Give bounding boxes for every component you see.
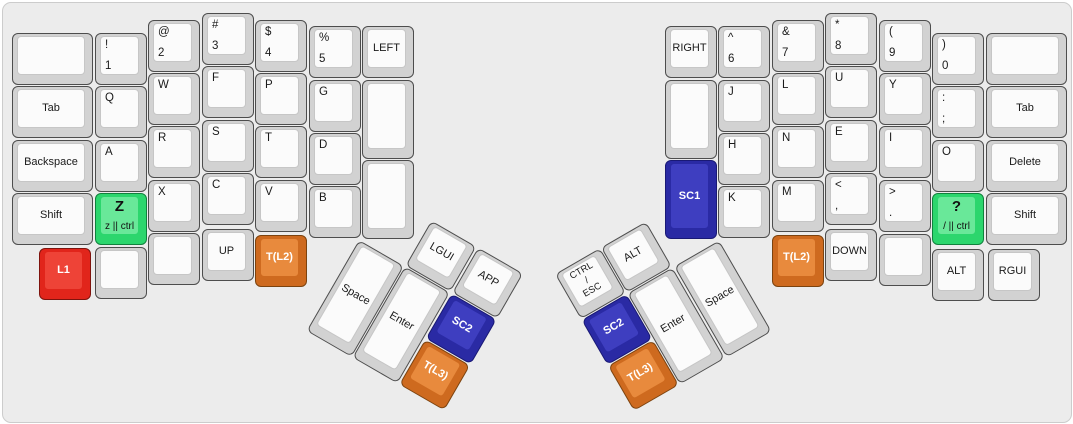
key-v[interactable]: V — [255, 180, 307, 232]
key-tab-left[interactable]: Tab — [12, 86, 93, 138]
key-u[interactable]: U — [825, 66, 877, 118]
key-2-label-bl: 2 — [158, 47, 164, 59]
key-7[interactable]: &7 — [772, 20, 824, 72]
key-4-label-bl: 4 — [265, 47, 271, 59]
key-x-label-tl: X — [158, 186, 166, 198]
key-s-cap: S — [207, 123, 246, 162]
key-ctrl-esc-label-center: CTRL / ESC — [562, 256, 613, 307]
key-t-l2-left-label-center: T(L2) — [261, 239, 298, 276]
key-shift-left-label-center: Shift — [18, 197, 84, 234]
key-t-l2-right[interactable]: T(L2) — [772, 235, 824, 287]
key-delete-label-center: Delete — [992, 144, 1058, 181]
key-3-label-tl: # — [212, 19, 218, 31]
key-o-label-tl: O — [942, 146, 951, 158]
key-t-l2-right-cap: T(L2) — [777, 238, 816, 277]
key-blank-left-col2-bottom-cap — [153, 236, 192, 275]
key-p-cap: P — [260, 76, 299, 115]
key-9-cap: (9 — [884, 23, 923, 62]
key-app-label-center: APP — [463, 254, 514, 305]
key-r-cap: R — [153, 129, 192, 168]
key-tab-left-cap: Tab — [17, 89, 85, 128]
key-v-cap: V — [260, 183, 299, 222]
key-o[interactable]: O — [932, 140, 984, 192]
key-g[interactable]: G — [309, 80, 361, 132]
key-alt-right[interactable]: ALT — [932, 249, 984, 301]
key-rgui[interactable]: RGUI — [988, 249, 1040, 301]
key-z-ctrl-label-big: Z — [101, 198, 138, 215]
key-l1-label-center: L1 — [45, 252, 82, 289]
key-6-label-tl: ^ — [728, 32, 733, 44]
key-comma-label-bl: , — [835, 200, 838, 212]
key-s[interactable]: S — [202, 120, 254, 172]
key-w-cap: W — [153, 76, 192, 115]
key-rgui-cap: RGUI — [993, 252, 1032, 291]
key-delete[interactable]: Delete — [986, 140, 1067, 192]
key-t-l2-right-label-center: T(L2) — [778, 239, 815, 276]
key-period[interactable]: >. — [879, 180, 931, 232]
key-blank-right-col-bottom-cap — [884, 237, 923, 276]
key-5[interactable]: %5 — [309, 26, 361, 78]
key-blank-left-inner-2-cap — [367, 163, 406, 229]
key-left[interactable]: LEFT — [362, 26, 414, 78]
key-l-label-tl: L — [782, 79, 788, 91]
key-shift-right[interactable]: Shift — [986, 193, 1067, 245]
key-8[interactable]: *8 — [825, 13, 877, 65]
key-blank-left-inner-2[interactable] — [362, 160, 414, 239]
key-p[interactable]: P — [255, 73, 307, 125]
key-right[interactable]: RIGHT — [665, 26, 717, 78]
key-tab-left-label-center: Tab — [18, 90, 84, 127]
key-blank-right-col-bottom[interactable] — [879, 234, 931, 286]
key-period-label-bl: . — [889, 207, 892, 219]
key-0[interactable]: )0 — [932, 33, 984, 85]
key-semicolon-cap: :; — [937, 89, 976, 128]
key-6[interactable]: ^6 — [718, 26, 770, 78]
key-n[interactable]: N — [772, 126, 824, 178]
key-left-cap: LEFT — [367, 29, 406, 68]
key-tab-right-cap: Tab — [991, 89, 1059, 128]
key-up-label-center: UP — [208, 233, 245, 270]
key-z-ctrl-label-sub: z || ctrl — [101, 221, 138, 232]
key-1-cap: !1 — [100, 36, 139, 75]
key-n-cap: N — [777, 129, 816, 168]
key-comma-label-tl: < — [835, 179, 842, 191]
key-blank-outer-top-right[interactable] — [986, 33, 1067, 85]
key-6-cap: ^6 — [723, 29, 762, 68]
key-b-label-tl: B — [319, 192, 327, 204]
key-right-cap: RIGHT — [670, 29, 709, 68]
key-blank-outer-top-right-cap — [991, 36, 1059, 75]
key-shift-left[interactable]: Shift — [12, 193, 93, 245]
key-shift-right-label-center: Shift — [992, 197, 1058, 234]
key-t-cap: T — [260, 129, 299, 168]
key-1[interactable]: !1 — [95, 33, 147, 85]
key-z-ctrl[interactable]: Zz || ctrl — [95, 193, 147, 245]
key-i[interactable]: I — [879, 126, 931, 178]
key-p-label-tl: P — [265, 79, 273, 91]
key-5-label-tl: % — [319, 32, 329, 44]
key-i-cap: I — [884, 129, 923, 168]
key-u-label-tl: U — [835, 72, 843, 84]
key-w-label-tl: W — [158, 79, 169, 91]
key-blank-left-inner-1[interactable] — [362, 80, 414, 159]
key-h[interactable]: H — [718, 133, 770, 185]
key-m-cap: M — [777, 183, 816, 222]
key-f[interactable]: F — [202, 66, 254, 118]
key-x[interactable]: X — [148, 180, 200, 232]
key-9-label-tl: ( — [889, 26, 893, 38]
key-c[interactable]: C — [202, 173, 254, 225]
key-8-label-bl: 8 — [835, 40, 841, 52]
key-backspace[interactable]: Backspace — [12, 140, 93, 192]
key-9[interactable]: (9 — [879, 20, 931, 72]
key-blank-outer-top-left-cap — [17, 36, 85, 75]
key-5-label-bl: 5 — [319, 53, 325, 65]
key-tab-right-label-center: Tab — [992, 90, 1058, 127]
key-blank-left-inner-1-cap — [367, 83, 406, 149]
key-t[interactable]: T — [255, 126, 307, 178]
key-slash-ctrl-label-sub: / || ctrl — [938, 221, 975, 232]
key-up-cap: UP — [207, 232, 246, 271]
key-f-label-tl: F — [212, 72, 219, 84]
key-comma[interactable]: <, — [825, 173, 877, 225]
key-8-label-tl: * — [835, 19, 839, 31]
key-w[interactable]: W — [148, 73, 200, 125]
key-v-label-tl: V — [265, 186, 273, 198]
key-u-cap: U — [830, 69, 869, 108]
key-sc1[interactable]: SC1 — [665, 160, 717, 239]
key-4-cap: $4 — [260, 23, 299, 62]
key-d[interactable]: D — [309, 133, 361, 185]
key-d-label-tl: D — [319, 139, 327, 151]
key-l[interactable]: L — [772, 73, 824, 125]
key-period-label-tl: > — [889, 186, 896, 198]
key-t-label-tl: T — [265, 132, 272, 144]
key-h-cap: H — [723, 136, 762, 175]
key-t-l2-left[interactable]: T(L2) — [255, 235, 307, 287]
key-up[interactable]: UP — [202, 229, 254, 281]
key-q-label-tl: Q — [105, 92, 114, 104]
key-t-l2-left-cap: T(L2) — [260, 238, 299, 277]
key-g-cap: G — [314, 83, 353, 122]
key-down-label-center: DOWN — [831, 233, 868, 270]
key-3-label-bl: 3 — [212, 40, 218, 52]
keyboard-panel: TabBackspaceShift!1QAZz || ctrl@2WRX#3FS… — [2, 2, 1072, 423]
key-r[interactable]: R — [148, 126, 200, 178]
key-l1[interactable]: L1 — [39, 248, 91, 300]
key-period-cap: >. — [884, 183, 923, 222]
key-alt-thumb-right-label-center: ALT — [608, 230, 659, 281]
key-e-cap: E — [830, 123, 869, 162]
key-blank-left-col1-bottom-cap — [100, 250, 139, 289]
key-c-label-tl: C — [212, 179, 220, 191]
key-alt-right-cap: ALT — [937, 252, 976, 291]
key-delete-cap: Delete — [991, 143, 1059, 182]
key-1-label-bl: 1 — [105, 60, 111, 72]
key-2-cap: @2 — [153, 23, 192, 62]
key-slash-ctrl-label-big: ? — [938, 198, 975, 215]
key-7-cap: &7 — [777, 23, 816, 62]
key-blank-outer-top-left[interactable] — [12, 33, 93, 85]
key-g-label-tl: G — [319, 86, 328, 98]
key-i-label-tl: I — [889, 132, 892, 144]
key-m[interactable]: M — [772, 180, 824, 232]
key-n-label-tl: N — [782, 132, 790, 144]
key-lgui-cap: LGUI — [415, 226, 468, 279]
key-k-label-tl: K — [728, 192, 736, 204]
key-e-label-tl: E — [835, 126, 843, 138]
key-l-cap: L — [777, 76, 816, 115]
key-2[interactable]: @2 — [148, 20, 200, 72]
key-7-label-tl: & — [782, 26, 790, 38]
key-e[interactable]: E — [825, 120, 877, 172]
key-j[interactable]: J — [718, 80, 770, 132]
key-l1-cap: L1 — [44, 251, 83, 290]
key-down[interactable]: DOWN — [825, 229, 877, 281]
key-a-label-tl: A — [105, 146, 113, 158]
key-shift-left-cap: Shift — [17, 196, 85, 235]
key-tab-right[interactable]: Tab — [986, 86, 1067, 138]
key-a-cap: A — [100, 143, 139, 182]
key-semicolon-label-tl: : — [942, 92, 945, 104]
key-rgui-label-center: RGUI — [994, 253, 1031, 290]
key-y[interactable]: Y — [879, 73, 931, 125]
key-app-cap: APP — [461, 253, 514, 306]
key-z-ctrl-cap: Zz || ctrl — [100, 196, 139, 235]
key-y-cap: Y — [884, 76, 923, 115]
key-blank-right-inner-cap — [670, 83, 709, 149]
key-4-label-tl: $ — [265, 26, 271, 38]
key-j-label-tl: J — [728, 86, 734, 98]
key-semicolon[interactable]: :; — [932, 86, 984, 138]
key-alt-right-label-center: ALT — [938, 253, 975, 290]
key-right-label-center: RIGHT — [671, 30, 708, 67]
keyboard-layout-stage: TabBackspaceShift!1QAZz || ctrl@2WRX#3FS… — [0, 0, 1073, 424]
key-x-cap: X — [153, 183, 192, 222]
key-d-cap: D — [314, 136, 353, 175]
key-o-cap: O — [937, 143, 976, 182]
key-backspace-cap: Backspace — [17, 143, 85, 182]
key-ctrl-esc-cap: CTRL / ESC — [561, 255, 614, 308]
key-k-cap: K — [723, 189, 762, 228]
key-s-label-tl: S — [212, 126, 220, 138]
key-0-label-tl: ) — [942, 39, 946, 51]
key-blank-left-col1-bottom[interactable] — [95, 247, 147, 299]
key-comma-cap: <, — [830, 176, 869, 215]
key-m-label-tl: M — [782, 186, 792, 198]
key-0-label-bl: 0 — [942, 60, 948, 72]
key-b-cap: B — [314, 189, 353, 228]
key-sc1-cap: SC1 — [670, 163, 709, 229]
key-8-cap: *8 — [830, 16, 869, 55]
key-h-label-tl: H — [728, 139, 736, 151]
key-a[interactable]: A — [95, 140, 147, 192]
key-7-label-bl: 7 — [782, 47, 788, 59]
key-k[interactable]: K — [718, 186, 770, 238]
key-b[interactable]: B — [309, 186, 361, 238]
key-3[interactable]: #3 — [202, 13, 254, 65]
key-left-label-center: LEFT — [368, 30, 405, 67]
key-down-cap: DOWN — [830, 232, 869, 271]
key-1-label-tl: ! — [105, 39, 108, 51]
key-backspace-label-center: Backspace — [18, 144, 84, 181]
key-9-label-bl: 9 — [889, 47, 895, 59]
key-blank-right-inner[interactable] — [665, 80, 717, 159]
key-q[interactable]: Q — [95, 86, 147, 138]
key-q-cap: Q — [100, 89, 139, 128]
key-lgui-label-center: LGUI — [416, 227, 467, 278]
key-r-label-tl: R — [158, 132, 166, 144]
key-blank-left-col2-bottom[interactable] — [148, 233, 200, 285]
key-3-cap: #3 — [207, 16, 246, 55]
key-c-cap: C — [207, 176, 246, 215]
key-semicolon-label-bl: ; — [942, 113, 945, 125]
key-shift-right-cap: Shift — [991, 196, 1059, 235]
key-slash-ctrl[interactable]: ?/ || ctrl — [932, 193, 984, 245]
key-5-cap: %5 — [314, 29, 353, 68]
key-0-cap: )0 — [937, 36, 976, 75]
key-slash-ctrl-cap: ?/ || ctrl — [937, 196, 976, 235]
key-4[interactable]: $4 — [255, 20, 307, 72]
key-2-label-tl: @ — [158, 26, 170, 38]
key-sc1-label-center: SC1 — [671, 164, 708, 228]
key-6-label-bl: 6 — [728, 53, 734, 65]
key-j-cap: J — [723, 83, 762, 122]
key-y-label-tl: Y — [889, 79, 897, 91]
key-f-cap: F — [207, 69, 246, 108]
